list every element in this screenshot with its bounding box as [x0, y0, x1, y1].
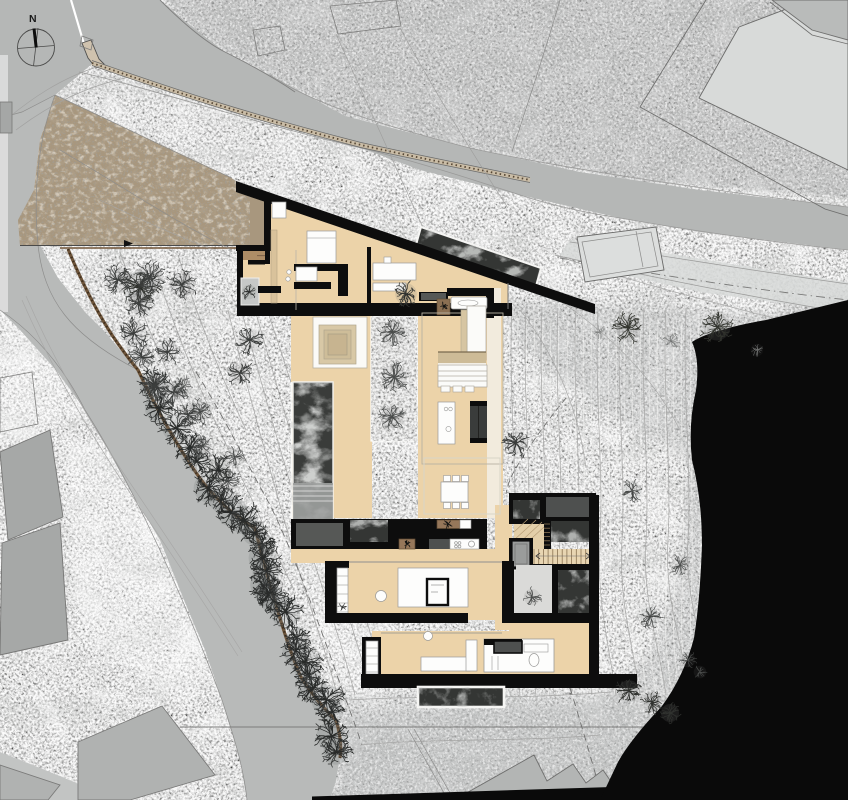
- svg-text:N: N: [29, 13, 37, 25]
